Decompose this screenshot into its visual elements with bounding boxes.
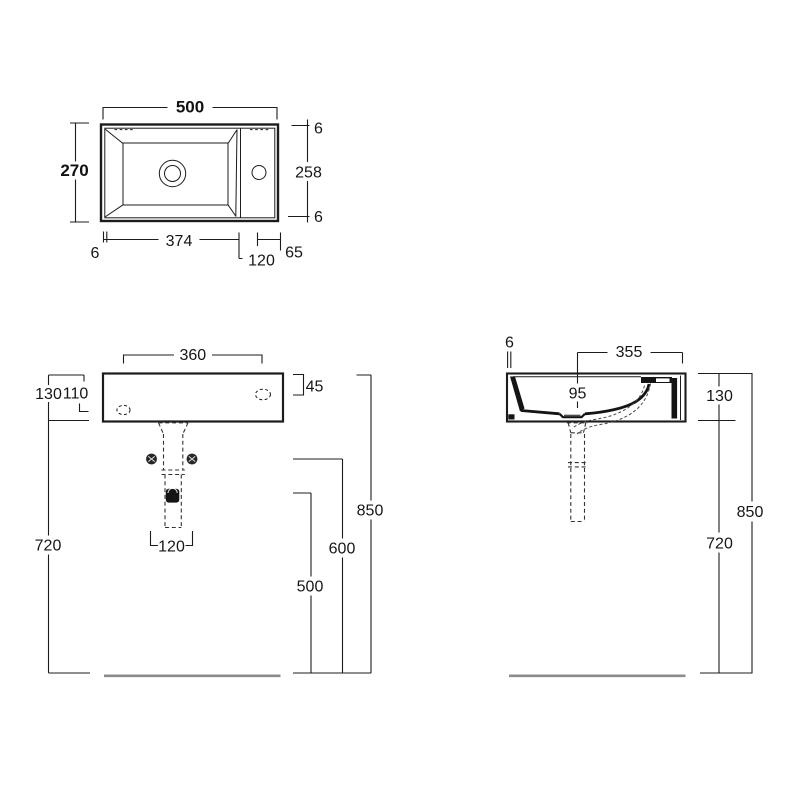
- dim-label-fixing-height: 600: [329, 541, 356, 558]
- dim-label-rim-left: 6: [91, 245, 100, 262]
- dim-label-rim-lip: 6: [505, 335, 514, 352]
- front-view: 360 130 110 45 720 850 600 500 120: [31, 347, 390, 676]
- dim-label-underside-height: 720: [706, 536, 733, 553]
- dim-label-underside-height: 720: [35, 538, 62, 555]
- waste-cup-hidden: [567, 423, 588, 433]
- dim-label-deck-width: 120: [248, 253, 275, 270]
- fixing-bolt-right: [187, 454, 198, 465]
- dim-label-rim-top: 6: [314, 121, 323, 138]
- technical-drawing-sheet: 500 270 258 6 6 374 6 65 120: [0, 0, 800, 800]
- dim-label-rim-depth: 355: [616, 344, 643, 361]
- dim-label-inner-height: 110: [63, 386, 89, 403]
- dim-label-rim-width: 360: [179, 347, 206, 364]
- side-view: 6 355 95 130 720 850: [505, 335, 769, 676]
- dim-lines-install-heights: [698, 374, 753, 674]
- dim-label-waste-offset: 120: [158, 539, 185, 556]
- dim-line-rim-lip: [508, 352, 511, 369]
- fitting-body: [166, 489, 180, 503]
- dim-label-waste-height: 500: [297, 579, 324, 596]
- dim-label-basin-height: 130: [35, 386, 62, 403]
- dim-label-apron-height: 45: [306, 379, 324, 396]
- front-lip-section: [508, 414, 514, 419]
- drawing-canvas: 500 270 258 6 6 374 6 65 120: [0, 0, 800, 800]
- dim-label-overall-depth: 270: [60, 161, 88, 180]
- basin-outer-rect: [101, 125, 278, 222]
- top-view: 500 270 258 6 6 374 6 65 120: [58, 98, 324, 270]
- tap-hole-slot: [656, 378, 670, 382]
- dim-lines-install-heights: [293, 375, 371, 673]
- dim-label-tap-to-edge: 65: [285, 245, 303, 262]
- dim-label-rim-height: 850: [737, 504, 764, 521]
- rear-wall-section: [672, 378, 678, 419]
- dim-label-inner-depth: 258: [295, 165, 322, 182]
- dim-label-basin-height: 130: [706, 388, 733, 405]
- dim-label-bowl-depth: 95: [569, 386, 587, 403]
- basin-front-rect: [103, 374, 283, 422]
- waste-outlet-fitting: [166, 488, 180, 502]
- dim-label-overall-width: 500: [176, 98, 204, 117]
- dim-label-rim-height: 850: [357, 503, 384, 520]
- waste-pipe-hidden: [568, 434, 587, 522]
- fixing-bolt-left: [146, 454, 157, 465]
- waste-pipe-hidden: [159, 423, 189, 528]
- dim-line-apron-height: [293, 375, 304, 396]
- dim-label-bowl-length: 374: [166, 233, 193, 250]
- dim-label-rim-bottom: 6: [314, 209, 323, 226]
